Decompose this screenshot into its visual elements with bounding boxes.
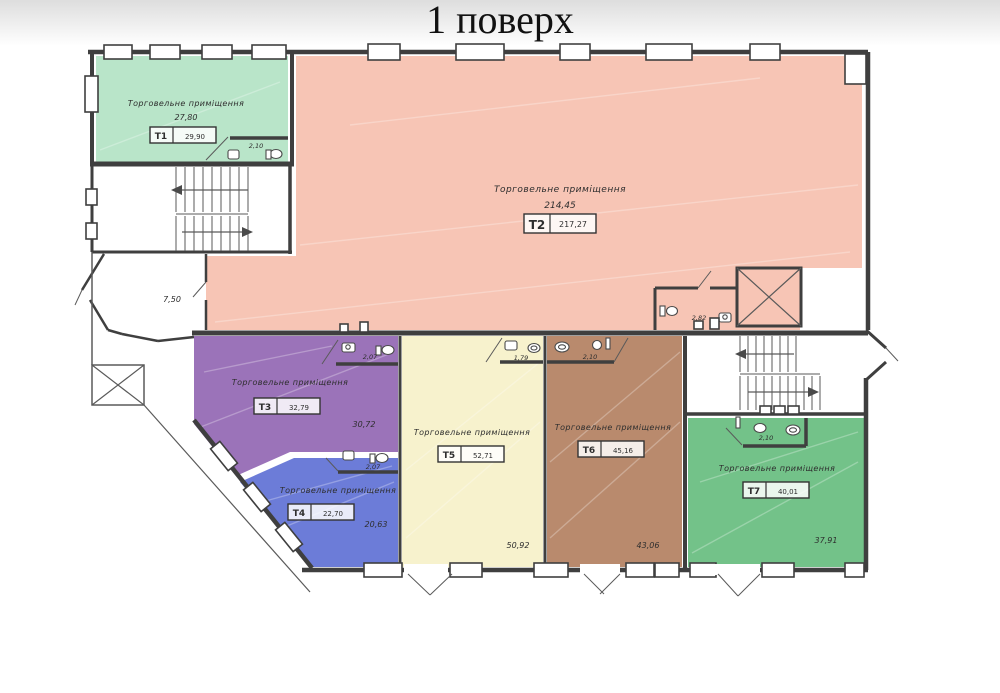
room-t1-total-area: 29,90 xyxy=(185,133,205,141)
room-t4-name: Торговельне приміщення xyxy=(280,486,396,495)
floor-plan-page: 1 поверх xyxy=(0,0,1000,693)
left-staircase xyxy=(171,167,253,251)
room-t5-wc-area: 1,79 xyxy=(514,354,528,362)
stair-arrow-down-icon xyxy=(808,387,819,397)
room-t5-name: Торговельне приміщення xyxy=(414,428,530,437)
room-t6-code: T6 xyxy=(583,446,595,456)
room-t2-floor-area: 214,45 xyxy=(544,201,576,211)
room-t7-name: Торговельне приміщення xyxy=(719,464,835,473)
page-title: 1 поверх xyxy=(0,0,1000,43)
room-t2-wc-area: 2,82 xyxy=(692,314,706,322)
room-t5-total-area: 52,71 xyxy=(473,452,493,460)
room-t3-floor-area: 30,72 xyxy=(353,420,376,429)
room-t5-code: T5 xyxy=(443,451,455,461)
room-t6-floor-area: 43,06 xyxy=(637,541,660,550)
room-t3-name: Торговельне приміщення xyxy=(232,378,348,387)
room-t7-floor-area: 37,91 xyxy=(815,536,838,545)
room-t7-total-area: 40,01 xyxy=(778,488,798,496)
room-t4-code: T4 xyxy=(293,509,305,519)
room-t6-total-area: 45,16 xyxy=(613,447,634,455)
room-t4-wc-area: 2,07 xyxy=(366,463,381,471)
room-t7-wc-area: 2,10 xyxy=(759,434,773,442)
room-t1-name: Торговельне приміщення xyxy=(128,99,244,108)
room-t1-wc-area: 2,10 xyxy=(249,142,263,150)
room-t1-code: T1 xyxy=(155,132,167,142)
room-t3-total-area: 32,79 xyxy=(289,404,309,412)
room-t6-name: Торговельне приміщення xyxy=(555,423,671,432)
room-t3-code: T3 xyxy=(259,403,271,413)
room-t2-code: T2 xyxy=(529,218,546,232)
room-t5-floor-area: 50,92 xyxy=(507,541,530,550)
room-t2-total-area: 217,27 xyxy=(559,220,587,229)
floor-plan-canvas: Торговельне приміщення 27,80 T1 29,90 2,… xyxy=(0,0,1000,693)
room-t2-name: Торговельне приміщення xyxy=(494,185,626,195)
vestibule-area-label: 7,50 xyxy=(163,295,181,304)
room-t6-wc-area: 2,10 xyxy=(583,353,597,361)
room-t7-code: T7 xyxy=(748,487,760,497)
room-t4-total-area: 22,70 xyxy=(323,510,343,518)
room-t1-floor-area: 27,80 xyxy=(175,113,198,122)
room-t3-wc-area: 2,07 xyxy=(363,353,378,361)
right-staircase xyxy=(735,336,820,414)
room-t4-floor-area: 20,63 xyxy=(365,520,388,529)
